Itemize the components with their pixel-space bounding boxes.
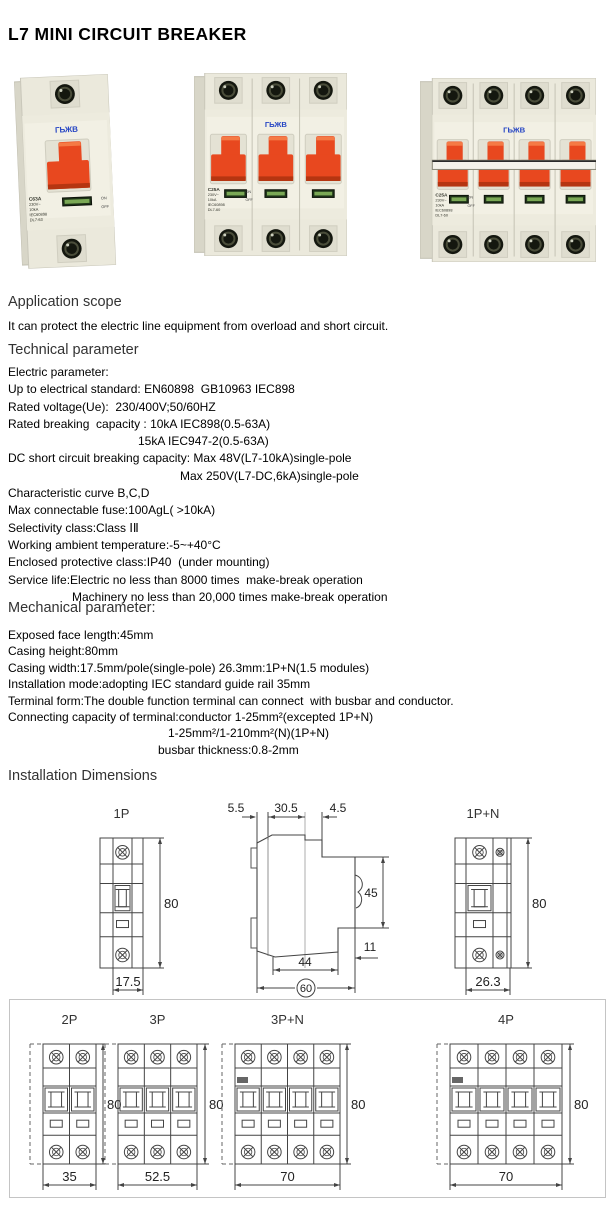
- svg-text:35: 35: [62, 1169, 76, 1184]
- svg-text:OFF: OFF: [468, 204, 476, 208]
- svg-text:10kA: 10kA: [435, 204, 444, 208]
- svg-text:2P: 2P: [62, 1012, 78, 1027]
- svg-text:IEC60898: IEC60898: [208, 203, 225, 207]
- spec-line: Working ambient temperature:-5~+40°C: [8, 537, 388, 554]
- spec-line: Selectivity class:Class ⅠⅡ: [8, 520, 388, 537]
- svg-text:45: 45: [364, 886, 378, 900]
- svg-text:ON: ON: [245, 190, 251, 194]
- svg-text:4P: 4P: [498, 1012, 514, 1027]
- svg-text:ON: ON: [468, 196, 474, 200]
- spec-line: Installation mode:adopting IEC standard …: [8, 676, 454, 692]
- svg-text:10kA: 10kA: [208, 198, 217, 202]
- svg-text:1P: 1P: [114, 806, 130, 821]
- svg-text:ГЬЖВ: ГЬЖВ: [265, 120, 288, 129]
- svg-text:ON: ON: [101, 196, 107, 200]
- svg-text:80: 80: [164, 896, 178, 911]
- spec-line: Connecting capacity of terminal:conducto…: [8, 709, 454, 725]
- svg-text:DL7-63: DL7-63: [30, 217, 44, 223]
- spec-line: busbar thickness:0.8-2mm: [8, 742, 454, 758]
- spec-line: 15kA IEC947-2(0.5-63A): [8, 433, 388, 450]
- section-heading-application: Application scope: [8, 294, 122, 310]
- svg-text:11: 11: [364, 940, 377, 954]
- svg-text:230V~: 230V~: [208, 193, 220, 197]
- svg-text:3P+N: 3P+N: [271, 1012, 304, 1027]
- spec-line: Casing height:80mm: [8, 643, 454, 659]
- installation-dimension-drawings: 1P8017.51P+N8026.32P80353P8052.53P+N8070…: [0, 790, 615, 1205]
- svg-text:80: 80: [209, 1097, 223, 1112]
- svg-text:60: 60: [300, 983, 312, 995]
- svg-text:OFF: OFF: [245, 198, 253, 202]
- svg-text:IEC60898: IEC60898: [435, 209, 452, 213]
- svg-text:ГЬЖВ: ГЬЖВ: [503, 125, 526, 134]
- svg-text:4.5: 4.5: [330, 801, 347, 815]
- drawing-4p: 4P8070: [437, 1012, 588, 1190]
- svg-text:44: 44: [298, 955, 312, 969]
- svg-text:52.5: 52.5: [145, 1169, 170, 1184]
- spec-line: 1-25mm²/1-210mm²(N)(1P+N): [8, 725, 454, 741]
- svg-text:1P+N: 1P+N: [467, 806, 500, 821]
- section-body-application: It can protect the electric line equipme…: [8, 318, 388, 335]
- drawing-3pn: 3P+N8070: [222, 1012, 365, 1190]
- drawing-3p: 3P8052.5: [105, 1012, 223, 1190]
- spec-line: Max connectable fuse:100AgL( >10kA): [8, 502, 388, 519]
- svg-text:80: 80: [107, 1097, 121, 1112]
- svg-text:30.5: 30.5: [274, 801, 298, 815]
- svg-text:OFF: OFF: [101, 205, 109, 209]
- spec-line: It can protect the electric line equipme…: [8, 318, 388, 335]
- svg-text:DL7-60: DL7-60: [435, 214, 448, 218]
- page-title: L7 MINI CIRCUIT BREAKER: [8, 24, 247, 45]
- spec-line: Rated breaking capacity : 10kA IEC898(0.…: [8, 416, 388, 433]
- svg-text:80: 80: [351, 1097, 365, 1112]
- spec-line: Rated voltage(Ue): 230/400V;50/60HZ: [8, 399, 388, 416]
- spec-line: DC short circuit breaking capacity: Max …: [8, 450, 388, 467]
- svg-text:26.3: 26.3: [475, 974, 500, 989]
- section-body-technical: Electric parameter:Up to electrical stan…: [8, 364, 388, 606]
- svg-text:DL7-60: DL7-60: [208, 208, 221, 212]
- product-photo-1p: ГЬЖВC63A230V~10kAIEC60898DL7-63ONOFF: [14, 74, 116, 269]
- section-heading-technical: Technical parameter: [8, 342, 139, 358]
- product-photo-3p: ГЬЖВC25A230V~10kAIEC60898DL7-60ONOFF: [194, 73, 347, 256]
- spec-line: Terminal form:The double function termin…: [8, 693, 454, 709]
- drawing-1pn: 1P+N8026.3: [455, 806, 546, 995]
- svg-text:3P: 3P: [150, 1012, 166, 1027]
- spec-line: Exposed face length:45mm: [8, 627, 454, 643]
- spec-line: Max 250V(L7-DC,6kA)single-pole: [8, 468, 388, 485]
- svg-text:80: 80: [532, 896, 546, 911]
- spec-line: Casing width:17.5mm/pole(single-pole) 26…: [8, 660, 454, 676]
- spec-line: Characteristic curve B,C,D: [8, 485, 388, 502]
- svg-text:17.5: 17.5: [115, 974, 140, 989]
- svg-text:ГЬЖВ: ГЬЖВ: [55, 125, 79, 135]
- svg-text:70: 70: [499, 1169, 513, 1184]
- drawing-1p: 1P8017.5: [100, 806, 178, 995]
- svg-text:70: 70: [280, 1169, 294, 1184]
- section-heading-mechanical: Mechanical parameter:: [8, 600, 156, 616]
- spec-line: Up to electrical standard: EN60898 GB109…: [8, 381, 388, 398]
- spec-line: Enclosed protective class:IP40 (under mo…: [8, 554, 388, 571]
- spec-line: Service life:Electric no less than 8000 …: [8, 572, 388, 589]
- svg-text:80: 80: [574, 1097, 588, 1112]
- section-body-mechanical: Exposed face length:45mmCasing height:80…: [8, 627, 454, 758]
- spec-line: Electric parameter:: [8, 364, 388, 381]
- product-photo-4p: ГЬЖВC25A230V~10kAIEC60898DL7-60ONOFF: [420, 78, 596, 262]
- drawing-side-profile: 5.530.54.545114460: [228, 801, 389, 997]
- svg-text:230V~: 230V~: [435, 199, 447, 203]
- svg-text:5.5: 5.5: [228, 801, 245, 815]
- drawing-2p: 2P8035: [30, 1012, 121, 1190]
- section-heading-installation: Installation Dimensions: [8, 768, 157, 784]
